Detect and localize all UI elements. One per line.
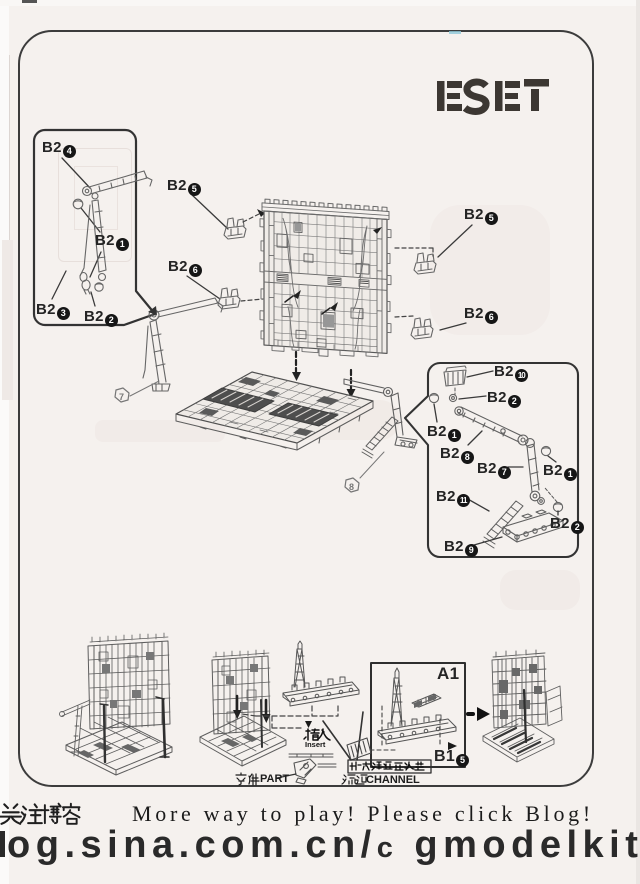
svg-text:PART: PART <box>260 773 289 785</box>
svg-text:CHANNEL: CHANNEL <box>366 774 420 786</box>
svg-text:Insert: Insert <box>305 740 326 749</box>
svg-text:7: 7 <box>119 392 124 402</box>
svg-text:8: 8 <box>349 482 354 492</box>
